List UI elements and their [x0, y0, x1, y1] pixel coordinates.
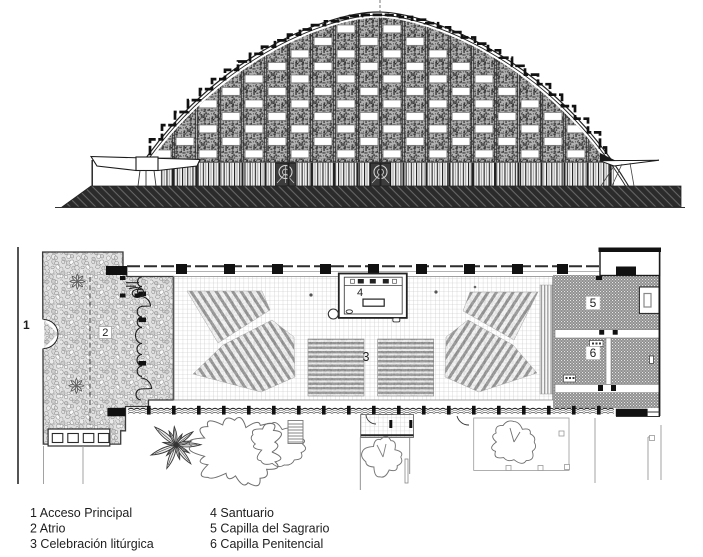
svg-text:5: 5	[590, 296, 597, 310]
svg-text:2 Atrio: 2 Atrio	[30, 522, 65, 536]
svg-text:4: 4	[357, 287, 363, 299]
svg-text:1: 1	[23, 318, 30, 332]
svg-text:5 Capilla del Sagrario: 5 Capilla del Sagrario	[210, 522, 330, 536]
svg-text:3: 3	[363, 350, 370, 364]
svg-text:3 Celebración litúrgica: 3 Celebración litúrgica	[30, 537, 154, 551]
svg-text:2: 2	[102, 327, 108, 339]
svg-text:6: 6	[590, 346, 597, 360]
svg-text:6 Capilla Penitencial: 6 Capilla Penitencial	[210, 537, 323, 551]
svg-text:1 Acceso Principal: 1 Acceso Principal	[30, 506, 132, 520]
svg-text:4 Santuario: 4 Santuario	[210, 506, 274, 520]
